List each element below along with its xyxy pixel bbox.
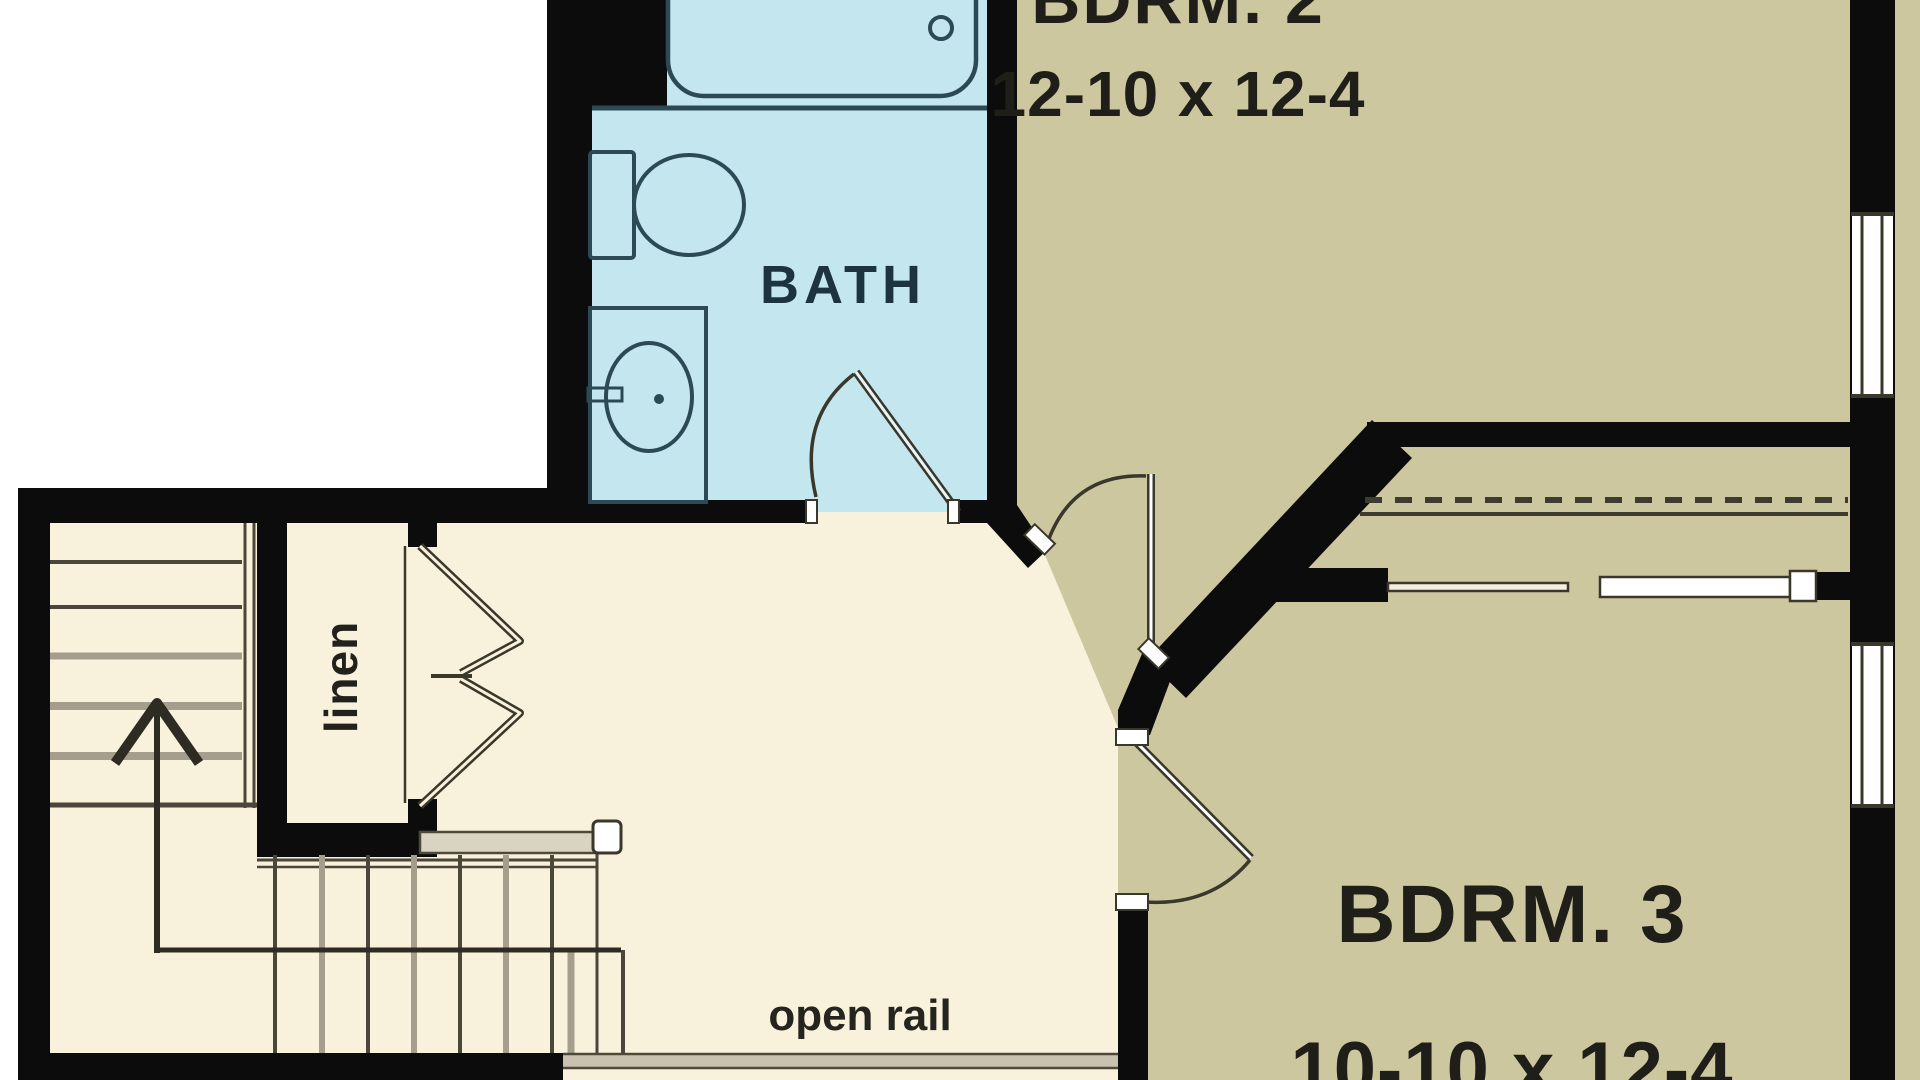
open-rail-label: open rail: [768, 994, 951, 1038]
bdrm2-label: BDRM. 2: [1031, 0, 1325, 34]
south-exterior-wall: [18, 1053, 563, 1080]
bdrm3-dimensions: 10-10 x 12-4: [1291, 1032, 1734, 1080]
drain-dot-icon: [654, 394, 664, 404]
linen-south-wall: [257, 823, 437, 857]
handrail: [420, 832, 597, 853]
bdrm3-label: BDRM. 3: [1336, 874, 1687, 956]
linen-label: linen: [318, 621, 364, 733]
floor-plan: BDRM. 2 12-10 x 12-4 BATH linen open rai…: [0, 0, 1920, 1080]
bath-label: BATH: [760, 258, 926, 312]
west-exterior-wall: [18, 488, 50, 1080]
newel-post: [593, 821, 621, 853]
open-rail-line: [563, 1054, 1118, 1068]
bdrm3-west-wall: [1118, 895, 1148, 1080]
linen-west-wall: [257, 523, 287, 857]
north-exterior-wall: [18, 488, 592, 523]
east-exterior-wall: [1850, 0, 1895, 1080]
window-bdrm2: [1851, 213, 1894, 397]
closet-east-jamb: [1816, 572, 1850, 600]
tub-alcove-wall: [547, 0, 667, 107]
window-bdrm3: [1851, 643, 1894, 807]
bdrm2-south-wall: [1367, 422, 1850, 447]
bdrm2-dimensions: 12-10 x 12-4: [991, 62, 1366, 126]
